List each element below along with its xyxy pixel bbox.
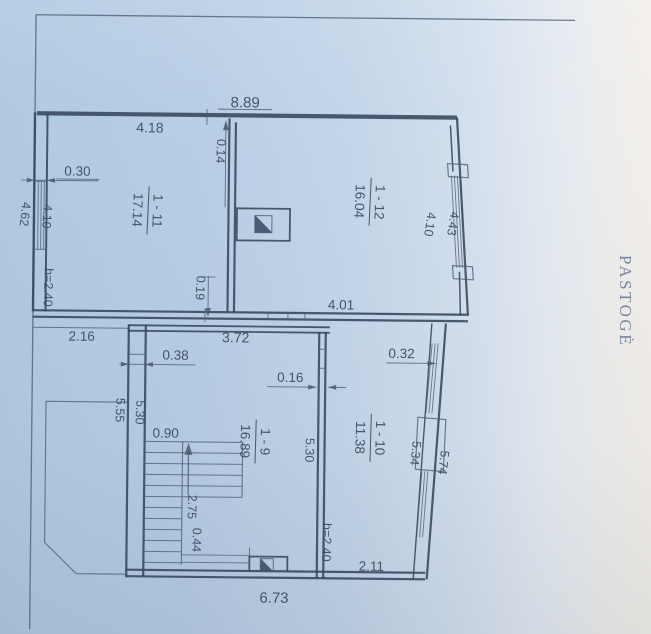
room-1-11-area: 17.14 <box>129 193 146 228</box>
page-frame <box>30 15 575 634</box>
dim-right-side-inner-lower: 5.34 <box>407 440 424 466</box>
dim-lower-room-height: h=2.40 <box>319 523 334 562</box>
footprint-outline <box>44 401 127 574</box>
room-1-9-number: 1 - 9 <box>257 428 273 455</box>
dim-left-side-outer: 4.62 <box>17 201 34 227</box>
room-1-10-area: 11.38 <box>352 421 368 454</box>
dim-lower-left-inner: 5.30 <box>132 400 147 425</box>
dim-top-left-segment: 4.18 <box>136 119 164 135</box>
wall-middle <box>33 310 468 321</box>
room-label-1-9: 1 - 9 16.89 <box>237 419 273 464</box>
flue-symbol-lower <box>260 559 273 572</box>
flue-box-upper <box>237 208 290 241</box>
dim-right-side-outer-upper: 4.43 <box>444 211 461 237</box>
dim-right-side-inner-upper: 4.10 <box>421 211 438 237</box>
dim-bottom-total: 6.73 <box>259 590 288 607</box>
frame-left-line <box>30 15 36 629</box>
dim-top-total: 8.89 <box>230 94 259 111</box>
wall-pier-left <box>126 325 146 576</box>
dimension-labels: 8.89 4.18 0.30 4.01 3.72 2.16 0.38 0.32 … <box>13 92 463 609</box>
dim-mid-opening: 3.72 <box>222 329 250 345</box>
upper-walls <box>33 112 470 325</box>
bottom-step-lines <box>181 555 249 563</box>
dim-top-wall-jog: 0.14 <box>213 139 228 164</box>
dim-stair-landing: 0.44 <box>189 528 204 553</box>
dim-lower-left-outer: 5.55 <box>112 398 127 423</box>
dim-bottom-right-segment: 2.11 <box>359 559 384 574</box>
dim-left-side-inner: 4.10 <box>39 204 55 229</box>
room-1-12-area: 16.04 <box>351 184 368 219</box>
dim-upper-room-height: h=2.40 <box>41 268 56 307</box>
room-label-1-12: 1 - 12 16.04 <box>351 177 388 227</box>
room-1-12-number: 1 - 12 <box>371 185 388 220</box>
room-label-1-11: 1 - 11 17.14 <box>129 186 166 236</box>
floor-plan-drawing: 8.89 4.18 0.30 4.01 3.72 2.16 0.38 0.32 … <box>0 0 651 634</box>
dim-lower-mid-inner: 5.30 <box>302 438 317 463</box>
page-side-caption: PASTOGĖ <box>616 255 635 347</box>
frame-top-line <box>36 15 575 21</box>
wall-top <box>37 113 457 117</box>
dim-mid-wall-jog: 0.19 <box>193 275 208 300</box>
dim-right-wall-thickness: 0.32 <box>388 346 414 361</box>
dim-pier-width: 0.38 <box>162 348 188 363</box>
window-sill-box-top <box>447 164 468 178</box>
room-1-9-area: 16.89 <box>237 424 253 458</box>
room-1-10-number: 1 - 10 <box>372 421 388 456</box>
room-1-11-number: 1 - 11 <box>149 194 166 228</box>
dim-stair-run: 2.75 <box>185 495 200 520</box>
room-label-1-10: 1 - 10 11.38 <box>352 413 388 462</box>
dim-right-side-outer-lower: 5.74 <box>435 450 452 476</box>
window-sill-box-bottom <box>452 266 473 280</box>
dim-mid-right-segment: 4.01 <box>328 297 354 312</box>
dim-mid-left-segment: 2.16 <box>68 329 94 344</box>
dim-left-wall-thickness: 0.30 <box>64 164 90 179</box>
dim-stair-flight-width: 0.90 <box>152 425 178 440</box>
dim-partition-thickness: 0.16 <box>277 370 303 385</box>
